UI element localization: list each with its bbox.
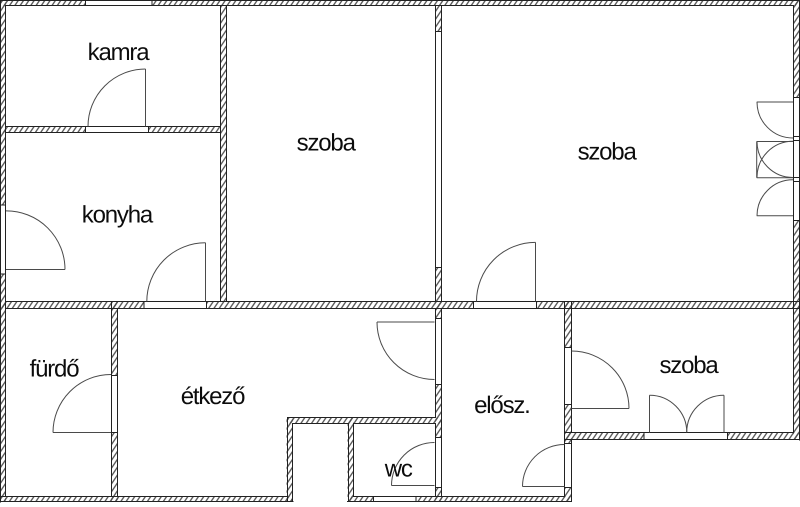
svg-text:étkező: étkező [181,383,245,410]
svg-text:konyha: konyha [82,202,154,229]
svg-text:kamra: kamra [88,39,151,66]
svg-text:szoba: szoba [297,130,357,157]
svg-text:fürdő: fürdő [30,356,80,383]
svg-text:szoba: szoba [578,139,638,166]
svg-text:elősz.: elősz. [474,392,530,419]
svg-text:szoba: szoba [659,352,719,379]
svg-text:wc: wc [384,456,413,483]
